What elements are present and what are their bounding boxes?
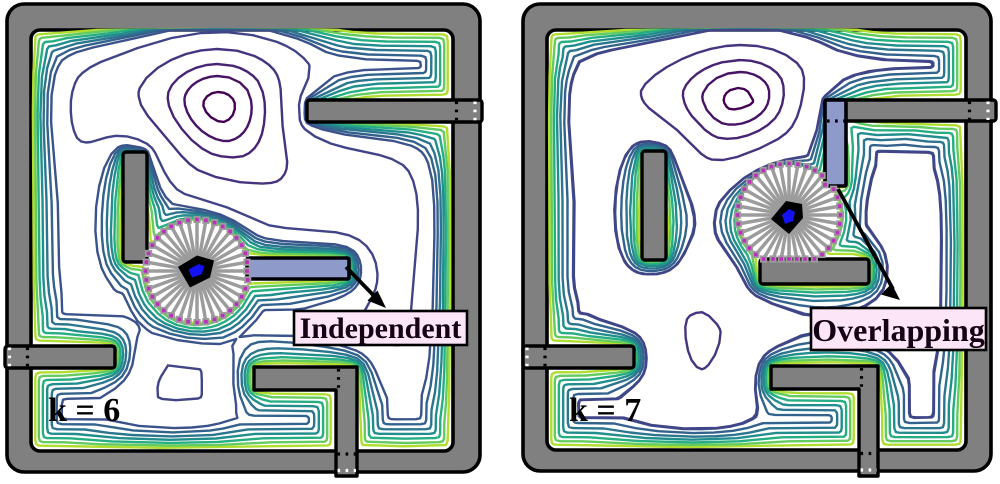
- svg-text:Independent: Independent: [300, 312, 462, 345]
- svg-text:k = 6: k = 6: [48, 392, 120, 429]
- svg-text:Overlapping: Overlapping: [812, 312, 984, 348]
- svg-text:k = 7: k = 7: [569, 392, 641, 429]
